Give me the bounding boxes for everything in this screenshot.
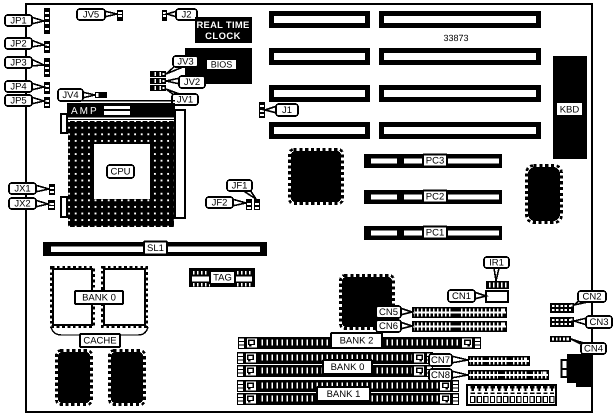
svg-text:JF2: JF2 [212, 198, 228, 209]
svg-text:PC3: PC3 [426, 156, 444, 167]
svg-text:SL1: SL1 [147, 243, 164, 254]
svg-text:CN5: CN5 [379, 307, 398, 318]
svg-text:TAG: TAG [213, 273, 232, 284]
svg-text:BANK 1: BANK 1 [327, 389, 361, 400]
svg-text:REAL TIME: REAL TIME [196, 19, 249, 30]
svg-text:PC1: PC1 [426, 228, 444, 239]
svg-text:33873: 33873 [443, 33, 468, 43]
svg-text:JV4: JV4 [62, 90, 78, 101]
svg-text:CACHE: CACHE [83, 336, 116, 347]
svg-text:CN4: CN4 [584, 344, 603, 355]
svg-text:CLOCK: CLOCK [205, 30, 241, 41]
svg-text:CN3: CN3 [589, 317, 608, 328]
svg-text:IR1: IR1 [489, 258, 504, 269]
svg-text:CN8: CN8 [431, 370, 450, 381]
svg-text:J1: J1 [282, 105, 292, 116]
svg-text:JP4: JP4 [10, 82, 26, 93]
svg-text:JP5: JP5 [10, 96, 26, 107]
svg-text:JV5: JV5 [83, 10, 99, 21]
svg-text:JV1: JV1 [177, 95, 193, 106]
svg-text:JV2: JV2 [184, 77, 200, 88]
svg-text:CN2: CN2 [582, 292, 601, 303]
svg-text:JP3: JP3 [10, 58, 26, 69]
svg-text:JX1: JX1 [14, 184, 30, 195]
svg-text:BANK 2: BANK 2 [340, 336, 374, 347]
svg-text:CN6: CN6 [379, 321, 398, 332]
svg-text:JF1: JF1 [232, 181, 248, 192]
svg-text:BANK 0: BANK 0 [82, 293, 116, 304]
svg-text:BIOS: BIOS [211, 60, 233, 70]
svg-text:PC2: PC2 [426, 192, 444, 203]
svg-text:J2: J2 [181, 10, 191, 21]
svg-text:KBD: KBD [560, 105, 580, 116]
svg-text:CPU: CPU [110, 167, 130, 178]
svg-text:JX2: JX2 [14, 199, 30, 210]
svg-text:JP2: JP2 [10, 39, 26, 50]
svg-text:JV3: JV3 [177, 57, 193, 68]
svg-text:AMP: AMP [71, 106, 99, 117]
svg-text:CN1: CN1 [452, 291, 471, 302]
svg-text:JP1: JP1 [10, 16, 26, 27]
svg-text:CN7: CN7 [431, 355, 450, 366]
svg-text:BANK 0: BANK 0 [331, 362, 365, 373]
